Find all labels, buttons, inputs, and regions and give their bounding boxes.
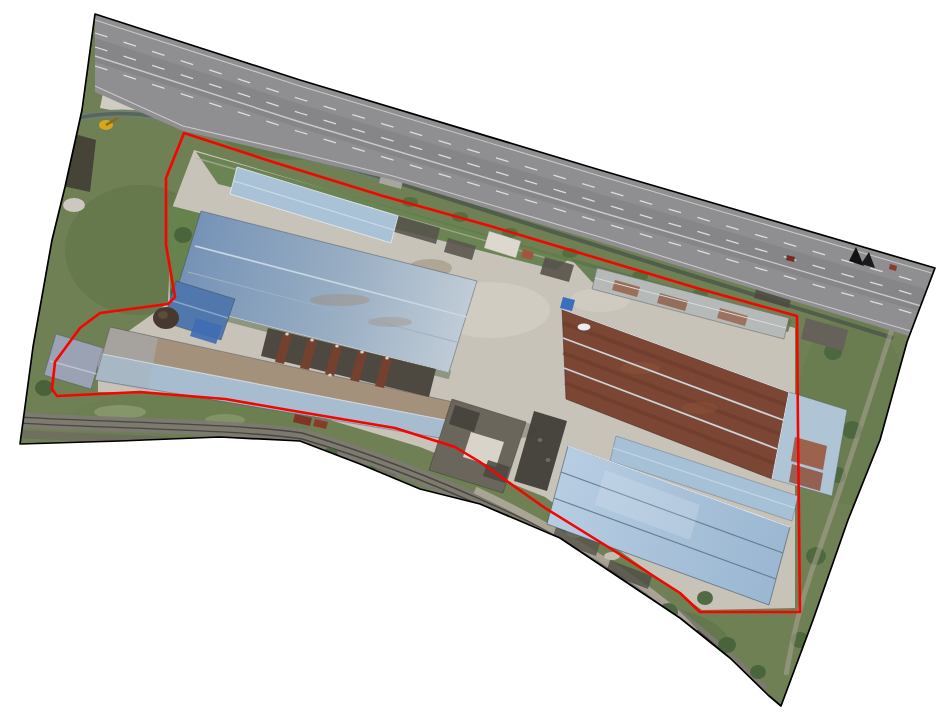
tank-cap-2	[310, 339, 314, 342]
tank-cap-1	[285, 333, 289, 336]
tank-cap-6	[328, 374, 332, 377]
tank-cap-3	[335, 345, 339, 348]
white-car	[578, 324, 591, 331]
orthophoto-scene	[0, 0, 943, 718]
tree-left-5	[35, 380, 53, 396]
charcoal-dot-1	[538, 438, 543, 442]
orthophoto-canvas	[0, 0, 943, 718]
main-roof-ruststreak-1	[310, 294, 370, 306]
kiln-highlight	[158, 311, 168, 319]
east-rust-mottle-2	[682, 402, 718, 414]
tree-bottom-6	[697, 591, 713, 605]
main-roof-ruststreak-2	[368, 317, 412, 327]
white-patch-west	[63, 198, 85, 212]
tree-inner-1	[174, 227, 192, 243]
tree-bottom-8	[750, 665, 766, 679]
tank-cap-4	[360, 351, 364, 354]
charcoal-dot-2	[546, 458, 551, 462]
tank-cap-5	[385, 357, 389, 360]
